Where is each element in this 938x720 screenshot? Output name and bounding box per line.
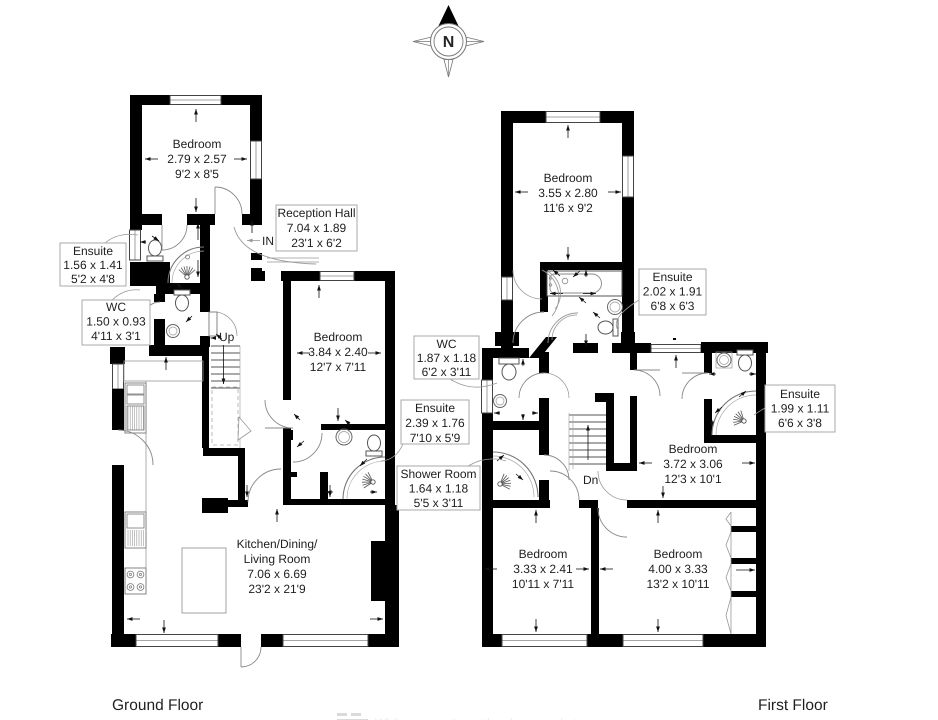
svg-text:12'3 x 10'1: 12'3 x 10'1 xyxy=(664,472,722,486)
svg-text:Bedroom: Bedroom xyxy=(669,442,718,456)
svg-text:IN: IN xyxy=(262,234,274,248)
svg-text:Dn: Dn xyxy=(583,473,598,487)
svg-text:10'11 x 7'11: 10'11 x 7'11 xyxy=(512,577,575,591)
svg-text:6'8 x 6'3: 6'8 x 6'3 xyxy=(651,299,695,313)
svg-text:3.84 x 2.40: 3.84 x 2.40 xyxy=(308,345,368,359)
svg-text:Bedroom: Bedroom xyxy=(654,547,703,561)
svg-text:13'2 x 10'11: 13'2 x 10'11 xyxy=(646,577,709,591)
svg-text:3.72 x 3.06: 3.72 x 3.06 xyxy=(663,457,723,471)
svg-text:WC: WC xyxy=(437,337,457,351)
svg-text:2.79 x 2.57: 2.79 x 2.57 xyxy=(167,152,227,166)
svg-text:23'1 x 6'2: 23'1 x 6'2 xyxy=(291,236,342,250)
svg-text:4.00 x 3.33: 4.00 x 3.33 xyxy=(648,562,708,576)
svg-text:4'11 x 3'1: 4'11 x 3'1 xyxy=(91,329,141,343)
svg-text:7.06 x 6.69: 7.06 x 6.69 xyxy=(247,567,307,581)
svg-text:1.64 x 1.18: 1.64 x 1.18 xyxy=(409,482,469,496)
svg-text:6'2 x 3'11: 6'2 x 3'11 xyxy=(422,365,472,379)
svg-text:Bedroom: Bedroom xyxy=(173,137,222,151)
svg-text:6'6 x 3'8: 6'6 x 3'8 xyxy=(778,416,822,430)
svg-text:Bedroom: Bedroom xyxy=(544,171,593,185)
svg-text:Living Room: Living Room xyxy=(244,552,311,566)
svg-text:First Floor: First Floor xyxy=(758,697,828,714)
svg-text:7.04 x 1.89: 7.04 x 1.89 xyxy=(287,221,347,235)
svg-text:Ensuite: Ensuite xyxy=(73,244,113,258)
svg-text:Up: Up xyxy=(219,330,235,344)
svg-text:Ensuite: Ensuite xyxy=(780,387,820,401)
svg-text:23'2 x 21'9: 23'2 x 21'9 xyxy=(248,582,306,596)
svg-text:Shower Room: Shower Room xyxy=(400,467,476,481)
svg-text:Reception Hall: Reception Hall xyxy=(277,206,355,220)
svg-text:1.56 x 1.41: 1.56 x 1.41 xyxy=(63,258,123,272)
svg-text:5'2 x 4'8: 5'2 x 4'8 xyxy=(71,272,115,286)
svg-text:12'7 x 7'11: 12'7 x 7'11 xyxy=(310,360,367,374)
svg-text:Ensuite: Ensuite xyxy=(652,270,692,284)
svg-text:9'2 x 8'5: 9'2 x 8'5 xyxy=(175,167,219,181)
svg-text:2.39 x 1.76: 2.39 x 1.76 xyxy=(405,416,465,430)
svg-text:N: N xyxy=(443,34,455,51)
svg-text:Whilst every attempt has been: Whilst every attempt has been made to en… xyxy=(375,716,674,720)
svg-text:Bedroom: Bedroom xyxy=(314,330,363,344)
svg-text:3.55 x 2.80: 3.55 x 2.80 xyxy=(538,186,598,200)
svg-text:3.33 x 2.41: 3.33 x 2.41 xyxy=(513,562,573,576)
svg-text:1.99 x 1.11: 1.99 x 1.11 xyxy=(771,402,830,416)
svg-text:WC: WC xyxy=(106,300,126,314)
svg-text:1.87 x 1.18: 1.87 x 1.18 xyxy=(417,351,477,365)
svg-text:7'10 x 5'9: 7'10 x 5'9 xyxy=(410,431,461,445)
svg-text:Ground Floor: Ground Floor xyxy=(112,697,203,714)
svg-text:5'5 x 3'11: 5'5 x 3'11 xyxy=(414,496,464,510)
svg-text:1.50 x 0.93: 1.50 x 0.93 xyxy=(86,315,146,329)
svg-text:Kitchen/Dining/: Kitchen/Dining/ xyxy=(237,537,318,551)
svg-text:11'6 x 9'2: 11'6 x 9'2 xyxy=(543,201,593,215)
svg-text:Bedroom: Bedroom xyxy=(519,547,568,561)
svg-text:2.02 x 1.91: 2.02 x 1.91 xyxy=(643,285,703,299)
svg-text:Ensuite: Ensuite xyxy=(415,401,455,415)
